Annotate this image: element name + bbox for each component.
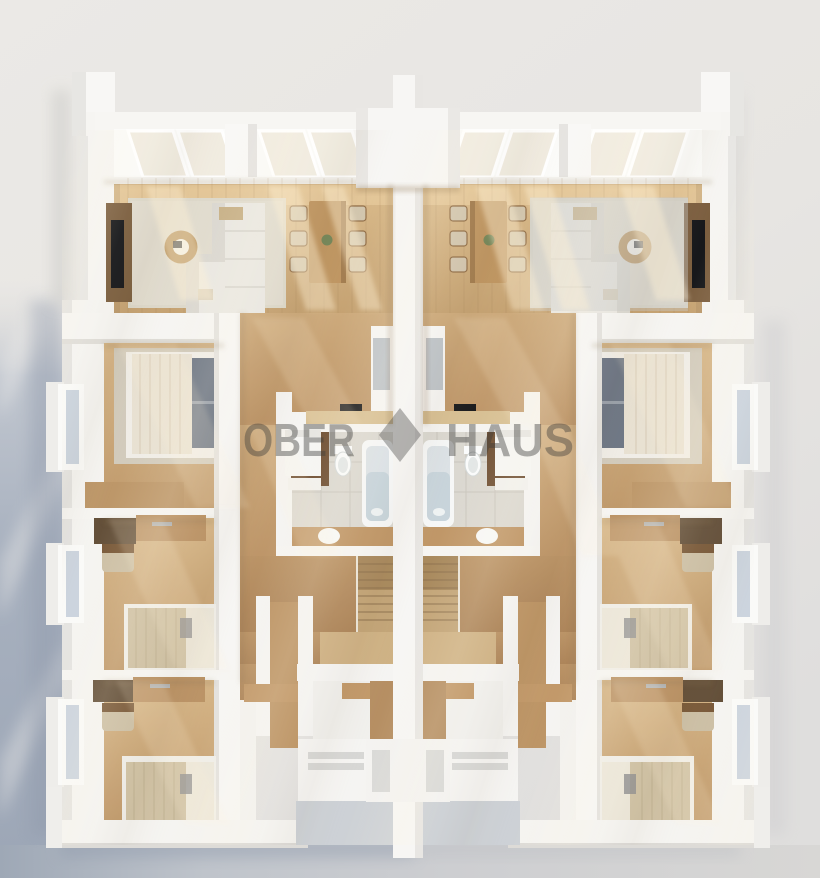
svg-text:HAUS: HAUS: [446, 414, 574, 466]
svg-text:OBER: OBER: [243, 414, 355, 466]
